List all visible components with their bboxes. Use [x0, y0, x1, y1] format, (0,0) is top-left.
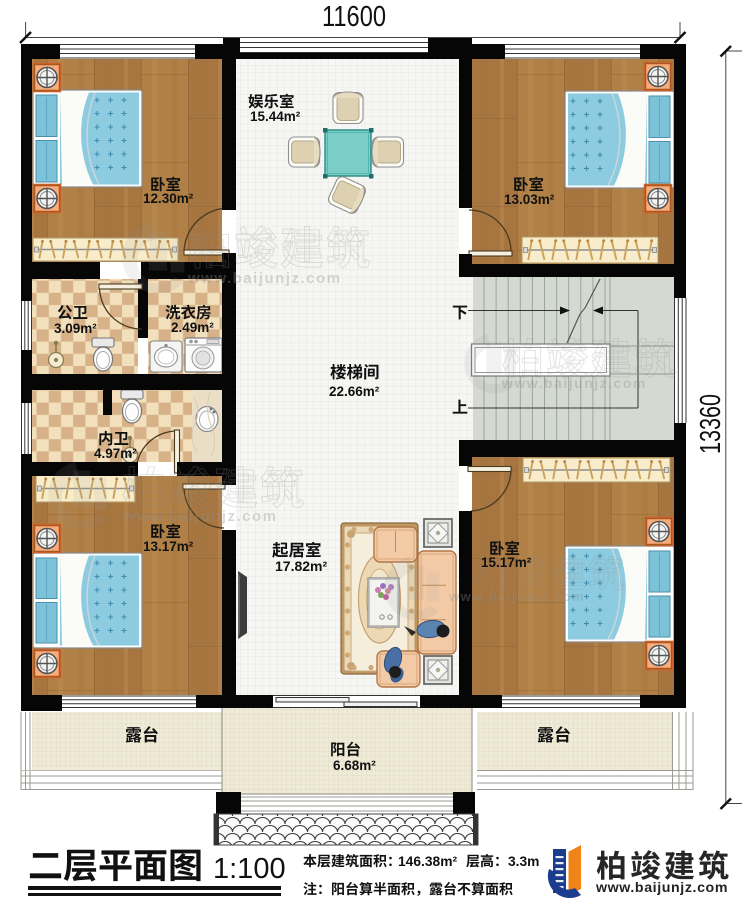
svg-text:3.09m²: 3.09m² [54, 321, 97, 336]
svg-text:4.97m²: 4.97m² [94, 446, 137, 461]
svg-text:www.baijunjz.com: www.baijunjz.com [448, 589, 585, 604]
svg-text:www.baijunjz.com: www.baijunjz.com [595, 880, 728, 896]
svg-text:15.44m²: 15.44m² [250, 109, 301, 124]
svg-text:www.baijunjz.com: www.baijunjz.com [187, 270, 341, 287]
svg-text:www.baijunjz.com: www.baijunjz.com [501, 375, 647, 391]
svg-text:146.38m²: 146.38m² [398, 854, 457, 869]
svg-text:13360: 13360 [695, 394, 727, 454]
svg-text:15.17m²: 15.17m² [481, 555, 532, 570]
svg-text:www.baijunjz.com: www.baijunjz.com [123, 508, 277, 525]
svg-text:13.03m²: 13.03m² [504, 192, 555, 207]
svg-text:12.30m²: 12.30m² [143, 191, 194, 206]
svg-text:2.49m²: 2.49m² [171, 320, 214, 335]
svg-text:17.82m²: 17.82m² [275, 558, 327, 574]
svg-text:13.17m²: 13.17m² [143, 539, 194, 554]
svg-text:22.66m²: 22.66m² [329, 384, 380, 399]
svg-text:3.3m: 3.3m [508, 854, 539, 869]
svg-text:11600: 11600 [322, 1, 386, 33]
svg-text:6.68m²: 6.68m² [333, 758, 376, 773]
svg-text:1:100: 1:100 [213, 853, 286, 885]
